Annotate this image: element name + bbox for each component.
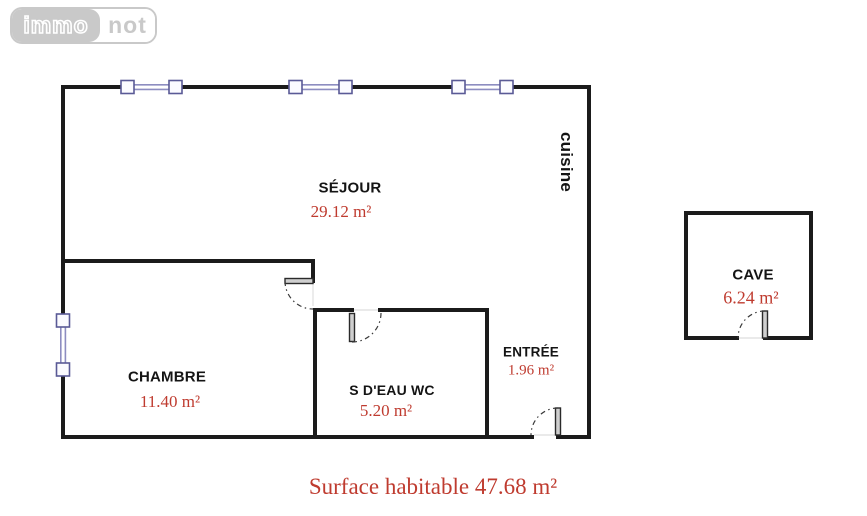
door-leaf-icon (763, 311, 768, 338)
window-top-1 (121, 81, 182, 94)
window-frame-icon (289, 81, 302, 94)
window-frame-icon (169, 81, 182, 94)
door-leaf-icon (285, 279, 313, 284)
door-chambre (285, 279, 313, 310)
door-leaf-icon (350, 314, 355, 342)
window-top-3 (452, 81, 513, 94)
door-swing-icon (531, 408, 558, 435)
room-label-chambre: CHAMBRE (128, 369, 206, 386)
wall-sejour-chambre (63, 261, 313, 281)
window-frame-icon (339, 81, 352, 94)
room-area-entree: 1.96 m² (508, 363, 554, 380)
room-area-chambre: 11.40 m² (140, 392, 200, 412)
room-area-sejour: 29.12 m² (311, 202, 372, 222)
wall-chambre-sdeau (315, 310, 352, 437)
window-top-2 (289, 81, 352, 94)
door-sdeau (350, 313, 382, 342)
room-area-cave: 6.24 m² (723, 288, 778, 309)
window-frame-icon (452, 81, 465, 94)
room-label-entree: ENTRÉE (503, 345, 559, 360)
door-entree (531, 408, 561, 435)
room-label-cuisine: cuisine (556, 132, 576, 192)
room-area-sdeau: 5.20 m² (360, 401, 412, 421)
interior-walls (63, 261, 487, 437)
door-swing-icon (738, 311, 765, 338)
door-swing-icon (285, 281, 313, 309)
room-label-sejour: SÉJOUR (319, 180, 382, 197)
window-frame-icon (57, 363, 70, 376)
floor-plan-drawing (0, 0, 867, 516)
window-frame-icon (121, 81, 134, 94)
room-label-cave: CAVE (732, 267, 773, 284)
room-label-sdeau: S D'EAU WC (349, 382, 434, 398)
floorplan-page: immo not (0, 0, 867, 516)
door-leaf-icon (556, 408, 561, 435)
door-swing-icon (352, 313, 381, 342)
window-frame-icon (500, 81, 513, 94)
window-left-chambre (57, 314, 70, 376)
surface-habitable-caption: Surface habitable 47.68 m² (309, 474, 557, 500)
window-frame-icon (57, 314, 70, 327)
